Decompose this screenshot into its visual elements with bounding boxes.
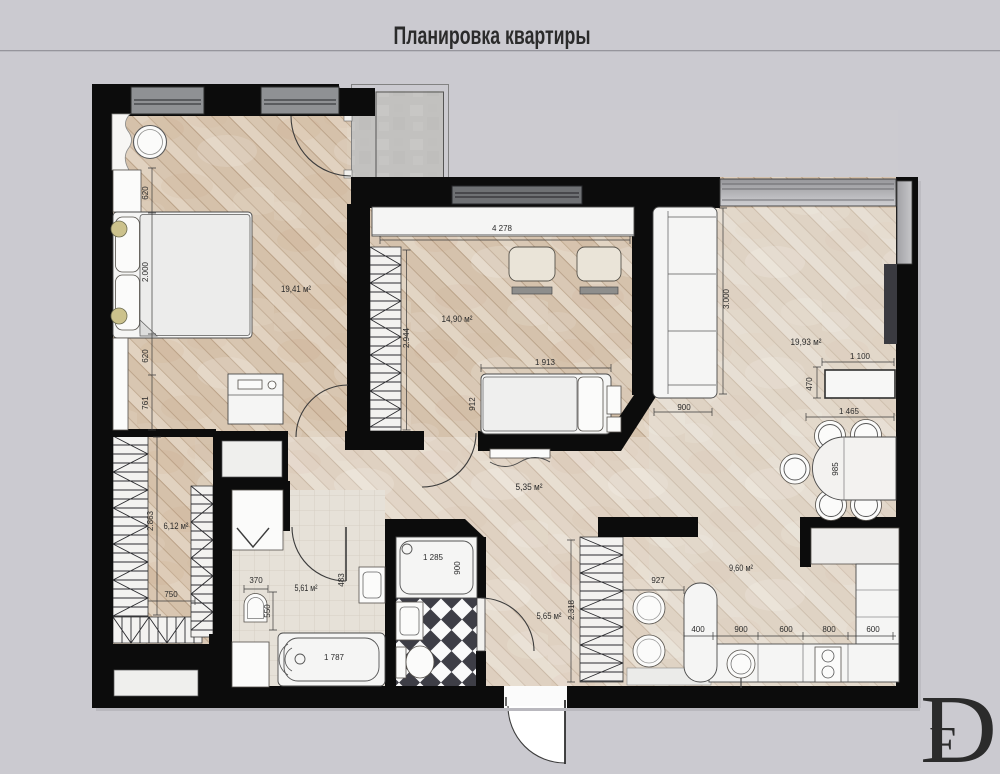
svg-text:2.863: 2.863 — [146, 510, 155, 531]
svg-text:985: 985 — [831, 462, 840, 476]
svg-text:900: 900 — [453, 561, 462, 575]
svg-text:14,90 м²: 14,90 м² — [442, 314, 473, 325]
svg-text:370: 370 — [249, 576, 263, 585]
svg-text:1 285: 1 285 — [423, 553, 444, 562]
svg-text:5,35 м²: 5,35 м² — [516, 482, 543, 493]
svg-text:900: 900 — [677, 403, 691, 412]
svg-text:620: 620 — [141, 186, 150, 200]
svg-text:F: F — [929, 716, 956, 771]
svg-text:550: 550 — [263, 604, 272, 618]
svg-text:1 100: 1 100 — [850, 352, 871, 361]
svg-text:600: 600 — [866, 625, 880, 634]
svg-text:5,61 м²: 5,61 м² — [295, 583, 318, 594]
svg-text:761: 761 — [141, 396, 150, 410]
svg-text:483: 483 — [337, 573, 346, 587]
svg-text:Планировка квартиры: Планировка квартиры — [394, 22, 591, 50]
svg-text:2.000: 2.000 — [141, 261, 150, 282]
svg-text:800: 800 — [822, 625, 836, 634]
svg-text:3.000: 3.000 — [722, 288, 731, 309]
svg-text:19,93 м²: 19,93 м² — [791, 337, 822, 348]
svg-text:1 787: 1 787 — [324, 653, 345, 662]
svg-text:5,65 м²: 5,65 м² — [537, 611, 562, 622]
svg-text:470: 470 — [805, 377, 814, 391]
svg-text:600: 600 — [779, 625, 793, 634]
svg-text:1 465: 1 465 — [839, 407, 860, 416]
svg-text:927: 927 — [651, 576, 665, 585]
svg-text:620: 620 — [141, 349, 150, 363]
svg-text:4 278: 4 278 — [492, 224, 513, 233]
svg-text:2.318: 2.318 — [567, 599, 576, 620]
svg-text:900: 900 — [734, 625, 748, 634]
svg-text:400: 400 — [691, 625, 705, 634]
svg-text:19,41 м²: 19,41 м² — [281, 284, 311, 295]
svg-text:750: 750 — [164, 590, 178, 599]
svg-text:1 913: 1 913 — [535, 358, 556, 367]
svg-text:6,12 м²: 6,12 м² — [164, 521, 189, 532]
svg-text:9,60 м²: 9,60 м² — [729, 563, 753, 574]
svg-text:912: 912 — [468, 397, 477, 411]
svg-text:2.944: 2.944 — [402, 327, 411, 348]
